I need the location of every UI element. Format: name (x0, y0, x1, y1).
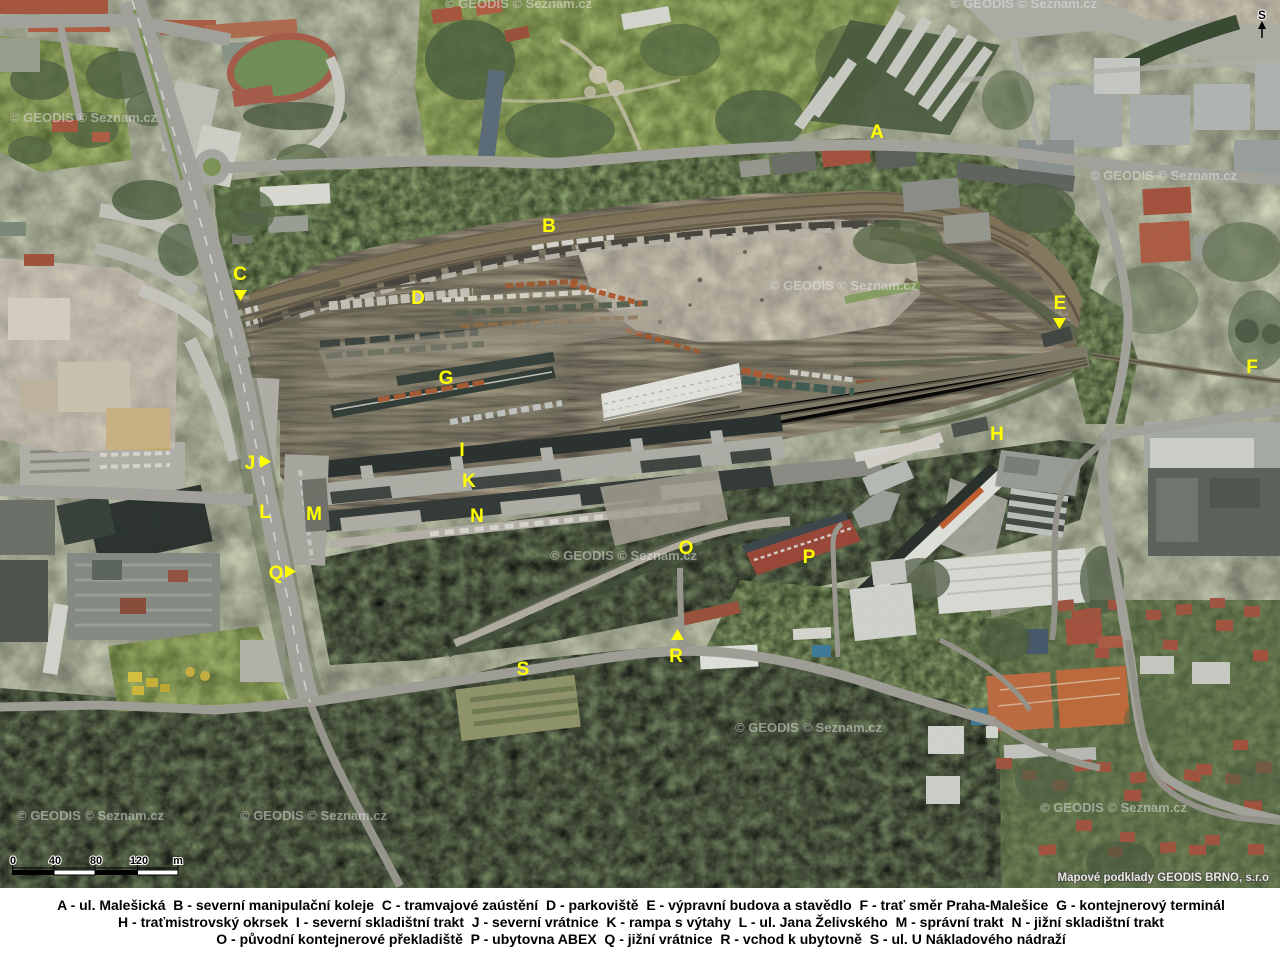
svg-text:Mapové podklady GEODIS BRNO, s: Mapové podklady GEODIS BRNO, s.r.o (1057, 872, 1269, 884)
svg-text:K: K (462, 471, 476, 492)
svg-text:L: L (259, 502, 271, 523)
svg-text:H - traťmistrovský okrsek I -: H - traťmistrovský okrsek I - severní sk… (118, 913, 1164, 930)
svg-text:S: S (1258, 8, 1266, 22)
svg-text:A - ul. Malešická B - severní: A - ul. Malešická B - severní manipulačn… (57, 897, 1225, 913)
svg-text:© GEODIS © Seznam.cz: © GEODIS © Seznam.cz (1090, 168, 1238, 183)
svg-text:Q: Q (269, 563, 284, 584)
svg-text:© GEODIS © Seznam.cz: © GEODIS © Seznam.cz (10, 110, 158, 125)
svg-text:© GEODIS © Seznam.cz: © GEODIS © Seznam.cz (770, 278, 918, 293)
svg-text:J: J (245, 453, 256, 474)
svg-text:N: N (470, 506, 484, 527)
svg-text:H: H (990, 424, 1004, 445)
svg-text:0: 0 (10, 855, 16, 867)
svg-text:O - původní kontejnerové překl: O - původní kontejnerové překladiště P -… (216, 931, 1067, 947)
svg-text:m: m (173, 855, 183, 867)
svg-text:© GEODIS © Seznam.cz: © GEODIS © Seznam.cz (735, 720, 883, 735)
svg-text:© GEODIS © Seznam.cz: © GEODIS © Seznam.cz (17, 808, 165, 823)
svg-text:C: C (233, 264, 247, 285)
svg-text:© GEODIS © Seznam.cz: © GEODIS © Seznam.cz (445, 0, 593, 11)
svg-text:P: P (803, 547, 816, 568)
svg-text:D: D (411, 288, 425, 309)
svg-text:© GEODIS © Seznam.cz: © GEODIS © Seznam.cz (550, 548, 698, 563)
svg-text:80: 80 (90, 855, 102, 867)
svg-text:© GEODIS © Seznam.cz: © GEODIS © Seznam.cz (240, 808, 388, 823)
svg-text:© GEODIS © Seznam.cz: © GEODIS © Seznam.cz (1040, 800, 1188, 815)
svg-text:R: R (669, 646, 683, 667)
svg-text:40: 40 (49, 855, 61, 867)
svg-text:E: E (1054, 293, 1067, 314)
svg-text:S: S (517, 659, 530, 680)
svg-text:120: 120 (130, 855, 148, 867)
svg-text:M: M (306, 504, 322, 525)
svg-text:F: F (1246, 357, 1258, 378)
svg-text:B: B (542, 216, 556, 237)
svg-text:© GEODIS © Seznam.cz: © GEODIS © Seznam.cz (950, 0, 1098, 11)
svg-text:I: I (459, 440, 464, 461)
svg-text:O: O (679, 538, 694, 559)
svg-text:A: A (870, 122, 884, 143)
svg-text:G: G (439, 368, 454, 389)
